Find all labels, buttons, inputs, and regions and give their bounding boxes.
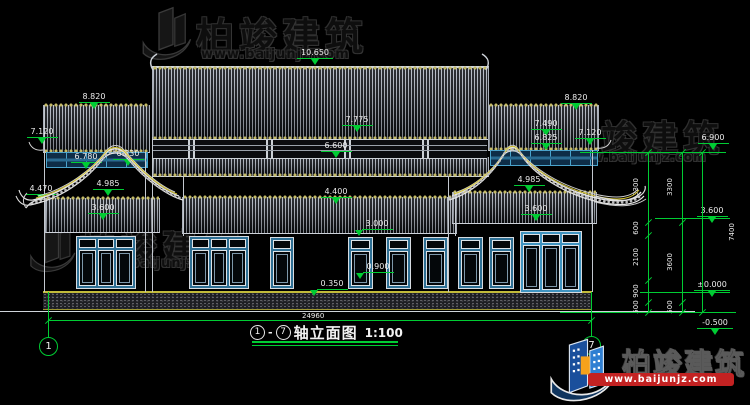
dimension-label: 500 <box>666 291 674 323</box>
window-pane <box>562 245 579 290</box>
elevation-value: 4.985 <box>97 179 120 188</box>
axis-stem <box>591 292 592 336</box>
window-column <box>116 239 133 286</box>
title-underline-thick <box>252 341 398 343</box>
window-pane <box>492 251 511 286</box>
window-pane <box>211 250 228 286</box>
window-pane <box>523 245 540 290</box>
elevation-marker: ±0.000 <box>682 281 742 297</box>
elevation-triangle <box>709 144 717 150</box>
level-line <box>580 152 726 153</box>
elevation-triangle <box>332 152 340 158</box>
watermark-url-bottom: www.baijunjz.com <box>588 373 734 386</box>
elevation-triangle <box>542 144 550 150</box>
window <box>423 237 448 289</box>
dimension-chain-line <box>648 152 649 312</box>
window-transom <box>229 239 246 248</box>
dimension-chain-line <box>682 152 683 312</box>
elevation-triangle <box>572 104 580 110</box>
window-column <box>273 240 291 286</box>
roof-center-skirt <box>152 157 489 177</box>
elevation-marker: 0.900 <box>348 263 408 279</box>
window <box>189 236 249 289</box>
elevation-value: 3.000 <box>366 219 389 228</box>
elevation-value: 3.600 <box>525 204 548 213</box>
elevation-value: 8.820 <box>565 93 588 102</box>
elevation-value: 6.900 <box>702 133 725 142</box>
elevation-triangle <box>532 215 540 221</box>
window-transom <box>562 234 579 243</box>
window-transom <box>389 240 408 249</box>
window-transom <box>523 234 540 243</box>
dimension-label: 500 <box>632 291 640 323</box>
elevation-marker: 3.600 <box>506 205 566 221</box>
elevation-marker: 6.900 <box>683 134 743 150</box>
dimension-label: 3300 <box>632 171 640 203</box>
elevation-triangle <box>353 126 361 132</box>
window-transom <box>351 240 370 249</box>
elevation-marker: 7.775 <box>327 116 387 132</box>
drawing-title: 1 - 7 轴立面图 1:100 <box>250 322 403 343</box>
dimension-label: 3300 <box>666 171 674 203</box>
window-transom <box>79 239 96 248</box>
window-transom <box>116 239 133 248</box>
dimension-label: 3600 <box>666 246 674 278</box>
title-scale: 1:100 <box>365 326 403 340</box>
roof-main <box>152 66 489 140</box>
elevation-marker: 4.985 <box>499 176 559 192</box>
elevation-triangle <box>82 163 90 169</box>
elevation-triangle <box>356 273 364 279</box>
window-transom <box>192 239 209 248</box>
dimension-label: 600 <box>632 212 640 244</box>
window-transom <box>211 239 228 248</box>
window-column <box>492 240 511 286</box>
elevation-marker: 6.600 <box>306 142 366 158</box>
window-column <box>523 234 540 290</box>
elevation-line <box>317 289 348 290</box>
title-dash: - <box>268 326 273 339</box>
dimension-label: 2100 <box>632 241 640 273</box>
title-underline-thin <box>252 345 398 346</box>
wall-line <box>455 192 456 236</box>
window-column <box>98 239 115 286</box>
dimension-chain-line <box>702 152 703 312</box>
elevation-value: 7.490 <box>535 119 558 128</box>
elevation-value: 8.820 <box>83 92 106 101</box>
window-column <box>461 240 480 286</box>
level-line <box>655 218 730 219</box>
elevation-triangle <box>586 139 594 145</box>
elevation-value: 6.780 <box>75 152 98 161</box>
elevation-value: 10.650 <box>301 48 329 57</box>
wall-line <box>448 176 449 292</box>
elevation-marker: 8.820 <box>64 93 124 109</box>
elevation-value: -0.500 <box>702 318 728 327</box>
window <box>270 237 294 289</box>
elevation-triangle <box>37 195 45 201</box>
entrance-door <box>520 231 582 293</box>
elevation-value: 4.985 <box>518 175 541 184</box>
window-column <box>426 240 445 286</box>
window-transom <box>98 239 115 248</box>
elevation-value: 3.600 <box>92 203 115 212</box>
window-pane <box>79 250 96 286</box>
axis-bubble-1: 1 <box>39 337 58 356</box>
window-transom <box>426 240 445 249</box>
window-pane <box>542 245 559 290</box>
elevation-marker: 10.650 <box>285 49 345 65</box>
elevation-marker: 3.000 <box>347 220 407 236</box>
elevation-triangle <box>99 214 107 220</box>
elevation-marker: 3.600 <box>73 204 133 220</box>
elevation-value: 7.120 <box>31 127 54 136</box>
elevation-marker: -0.500 <box>685 319 745 335</box>
title-axis-start-circle: 1 <box>250 325 265 340</box>
elevation-triangle <box>38 138 46 144</box>
window-transom <box>273 240 291 249</box>
elevation-value: 0.350 <box>321 279 344 288</box>
window-pane <box>229 250 246 286</box>
elevation-value: 4.400 <box>325 187 348 196</box>
window-column <box>211 239 228 286</box>
window <box>489 237 514 289</box>
elevation-value: 6.830 <box>117 149 140 158</box>
wall-line <box>592 150 593 292</box>
elevation-marker: 8.820 <box>546 94 606 110</box>
elevation-value: 6.825 <box>535 133 558 142</box>
level-line <box>640 292 730 293</box>
window-pane <box>116 250 133 286</box>
window-column <box>542 234 559 290</box>
title-axis-end-circle: 7 <box>276 325 291 340</box>
elevation-line <box>362 229 393 230</box>
elevation-value: 0.900 <box>367 262 390 271</box>
elevation-value: 4.470 <box>30 184 53 193</box>
axis-stem <box>48 292 49 337</box>
window <box>76 236 136 289</box>
elevation-marker: 7.120 <box>12 128 72 144</box>
dimension-label: 7400 <box>728 216 736 248</box>
elevation-triangle <box>711 329 719 335</box>
window-pane <box>426 251 445 286</box>
elevation-triangle <box>90 103 98 109</box>
cad-elevation-screenshot: 柏竣建筑 www.baijunjz.com 柏竣建筑 www.baijunjz.… <box>0 0 750 405</box>
window-column <box>229 239 246 286</box>
wall-line <box>183 176 184 236</box>
elevation-triangle <box>525 186 533 192</box>
window-column <box>192 239 209 286</box>
title-text: 轴立面图 <box>294 322 358 343</box>
window-transom <box>492 240 511 249</box>
elevation-marker: 4.470 <box>11 185 71 201</box>
window-column <box>562 234 579 290</box>
elevation-triangle <box>104 190 112 196</box>
elevation-value: 6.600 <box>325 141 348 150</box>
elevation-triangle <box>124 160 132 166</box>
elevation-triangle <box>355 230 363 236</box>
window-transom <box>542 234 559 243</box>
window-column <box>79 239 96 286</box>
elevation-value: 3.600 <box>701 206 724 215</box>
elevation-marker: 0.350 <box>302 280 362 296</box>
window-pane <box>98 250 115 286</box>
level-line <box>560 312 736 313</box>
overall-dimension-line <box>48 320 591 321</box>
elevation-triangle <box>311 59 319 65</box>
window <box>458 237 483 289</box>
elevation-triangle <box>332 198 340 204</box>
elevation-marker: 6.825 <box>516 134 576 150</box>
overall-dimension-value: 24960 <box>302 312 324 320</box>
elevation-line <box>363 272 394 273</box>
elevation-value: 7.775 <box>346 115 369 124</box>
window-pane <box>192 250 209 286</box>
elevation-marker: 6.830 <box>98 150 158 166</box>
window-pane <box>273 251 291 286</box>
elevation-value: 7.120 <box>579 128 602 137</box>
wall-line <box>145 152 146 292</box>
window-pane <box>461 251 480 286</box>
brand-logo-color <box>546 336 620 404</box>
window-transom <box>461 240 480 249</box>
elevation-marker: 4.400 <box>306 188 366 204</box>
elevation-triangle <box>310 290 318 296</box>
elevation-marker: 4.985 <box>78 180 138 196</box>
